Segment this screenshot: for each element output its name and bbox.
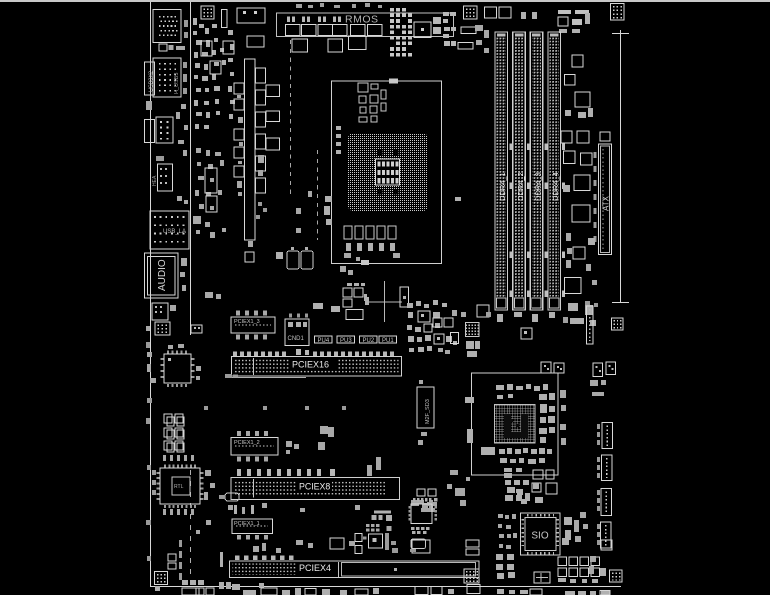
svg-text:PCIEX8: PCIEX8 (299, 482, 330, 492)
svg-text:DDR4_3: DDR4_3 (533, 172, 542, 201)
svg-text:PU2: PU2 (363, 338, 375, 344)
svg-text:DDR4_1: DDR4_1 (498, 172, 507, 201)
svg-text:USB_LA: USB_LA (163, 229, 186, 235)
svg-text:AUDIO: AUDIO (157, 259, 168, 291)
svg-text:PCIEX1_3: PCIEX1_3 (234, 319, 260, 325)
svg-text:PCIEX16: PCIEX16 (292, 360, 329, 370)
svg-text:HEA: HEA (152, 175, 158, 186)
svg-text:DDR4_4: DDR4_4 (551, 172, 560, 201)
svg-text:PCIEX1_1: PCIEX1_1 (234, 521, 260, 527)
svg-text:CND1: CND1 (288, 336, 305, 342)
svg-text:SIO: SIO (531, 531, 548, 542)
svg-text:RMOS: RMOS (345, 14, 379, 26)
svg-text:PCIEX1_2: PCIEX1_2 (234, 440, 260, 446)
svg-text:PU3: PU3 (340, 338, 352, 344)
svg-text:RTL: RTL (174, 484, 184, 490)
svg-text:USB3X2: USB3X2 (149, 71, 155, 92)
svg-text:H_USB3: H_USB3 (174, 73, 180, 94)
svg-text:PU4: PU4 (318, 338, 330, 344)
svg-text:PU1: PU1 (382, 338, 394, 344)
svg-text:PCIEX4: PCIEX4 (299, 563, 331, 573)
svg-text:M2F_SD3: M2F_SD3 (425, 399, 431, 424)
svg-text:ATX: ATX (602, 195, 611, 211)
svg-text:DDR4_2: DDR4_2 (516, 172, 525, 201)
